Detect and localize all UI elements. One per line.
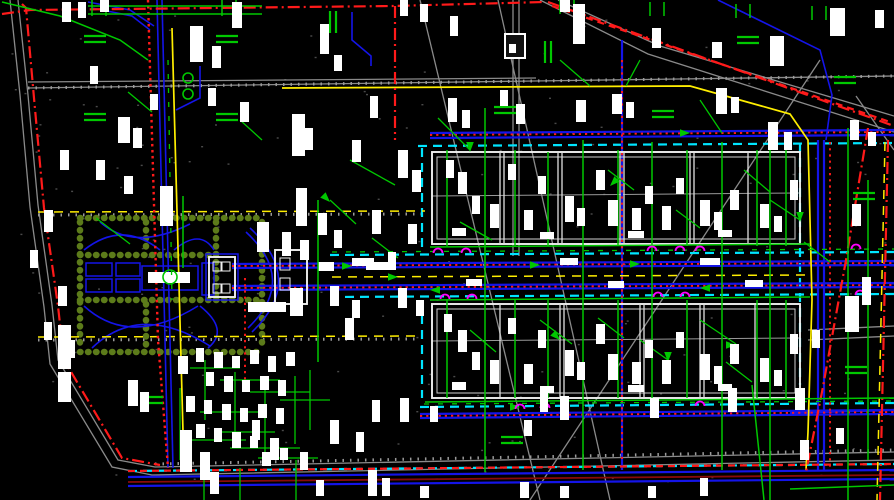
green-utility-lines	[2, 0, 894, 500]
cad-drawing-canvas[interactable]	[0, 0, 894, 500]
road-lines	[10, 0, 894, 500]
cad-viewport	[0, 0, 894, 500]
north-symbol	[505, 34, 525, 58]
green-dashed	[168, 60, 894, 404]
